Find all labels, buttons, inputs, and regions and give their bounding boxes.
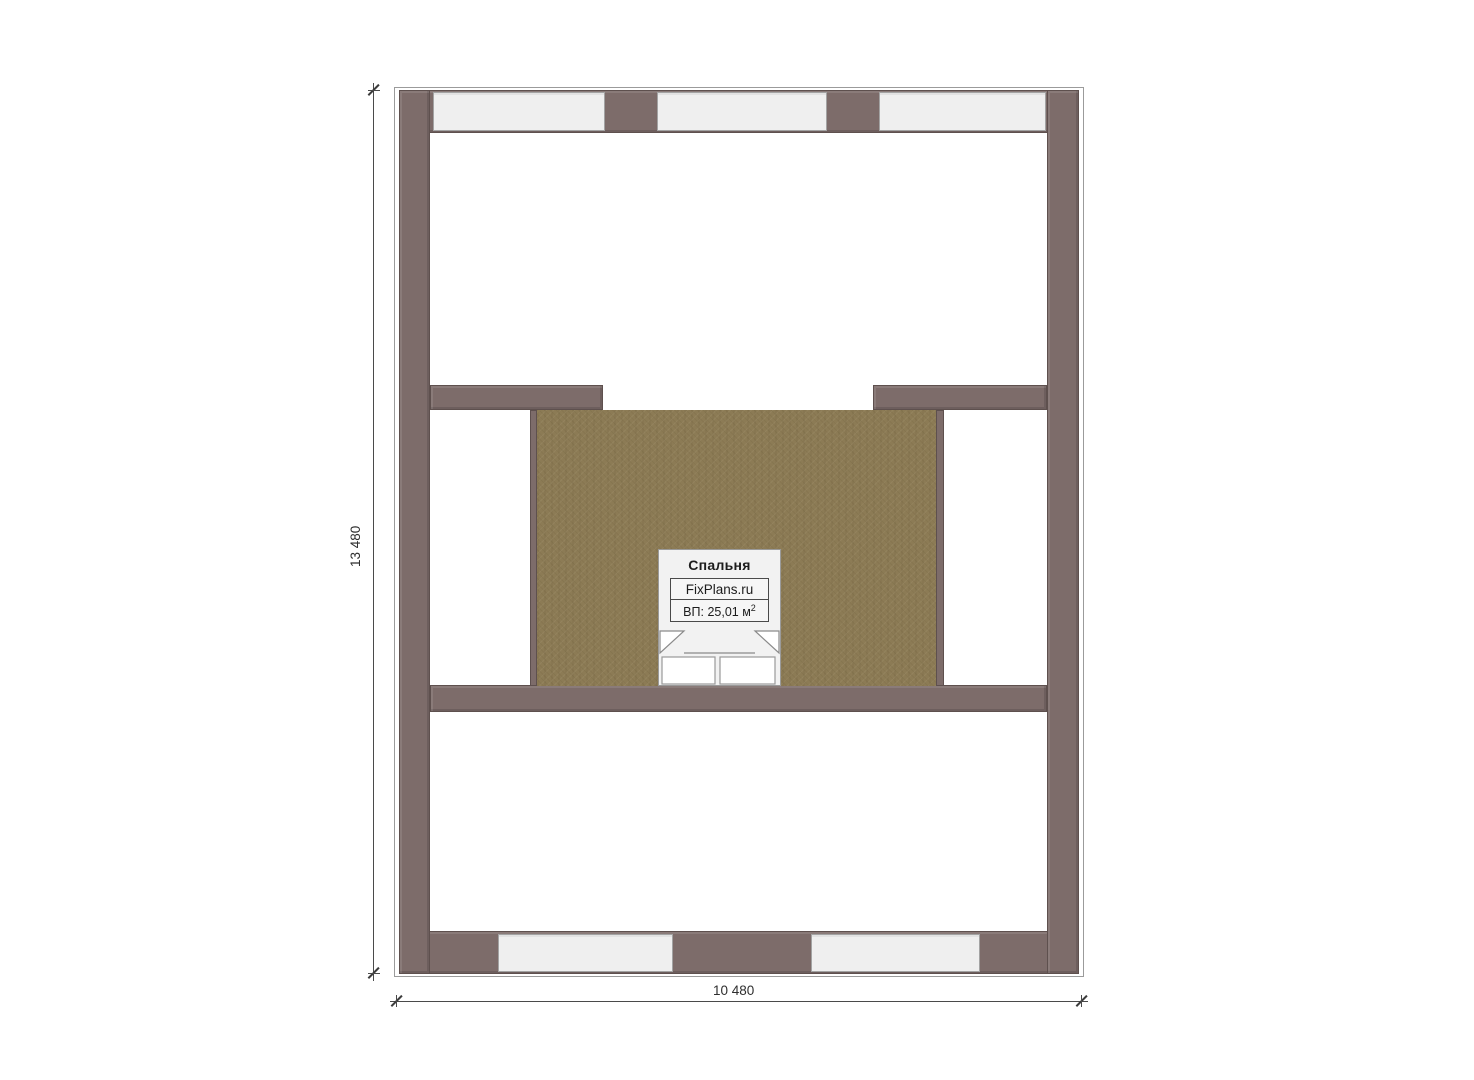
dimension-height-label: 13 480 — [348, 526, 363, 567]
floor-plan-canvas: Спальня FixPlans.ru ВП: 25,01 м2 13 480 — [0, 0, 1474, 1080]
window-top-1 — [433, 92, 605, 131]
dimension-extension — [368, 973, 380, 974]
window-top-2 — [657, 92, 827, 131]
room-brand: FixPlans.ru — [671, 579, 768, 600]
break-mark-left — [660, 631, 684, 653]
room-name: Спальня — [659, 557, 780, 573]
dimension-horizontal-line — [390, 1001, 1088, 1002]
stair-step-left — [662, 657, 715, 684]
dimension-vertical-line — [373, 83, 374, 981]
window-bottom-2 — [811, 934, 980, 972]
wall-stub-left — [430, 385, 603, 410]
break-mark-right — [755, 631, 779, 653]
stair-opening-symbol — [659, 625, 780, 685]
wall-stub-right — [873, 385, 1047, 410]
wall-left — [399, 90, 430, 974]
window-top-3 — [879, 92, 1046, 131]
window-bottom-1 — [498, 934, 673, 972]
wall-bedroom-right — [936, 410, 944, 686]
wall-right — [1047, 90, 1079, 974]
room-label-panel: Спальня FixPlans.ru ВП: 25,01 м2 — [658, 549, 781, 686]
dimension-extension — [396, 995, 397, 1007]
wall-middle — [430, 685, 1047, 712]
room-info-table: FixPlans.ru ВП: 25,01 м2 — [670, 578, 769, 622]
stair-step-right — [720, 657, 775, 684]
room-area: ВП: 25,01 м2 — [671, 600, 768, 621]
dimension-extension — [368, 90, 380, 91]
wall-bedroom-left — [530, 410, 537, 686]
dimension-extension — [1081, 995, 1082, 1007]
